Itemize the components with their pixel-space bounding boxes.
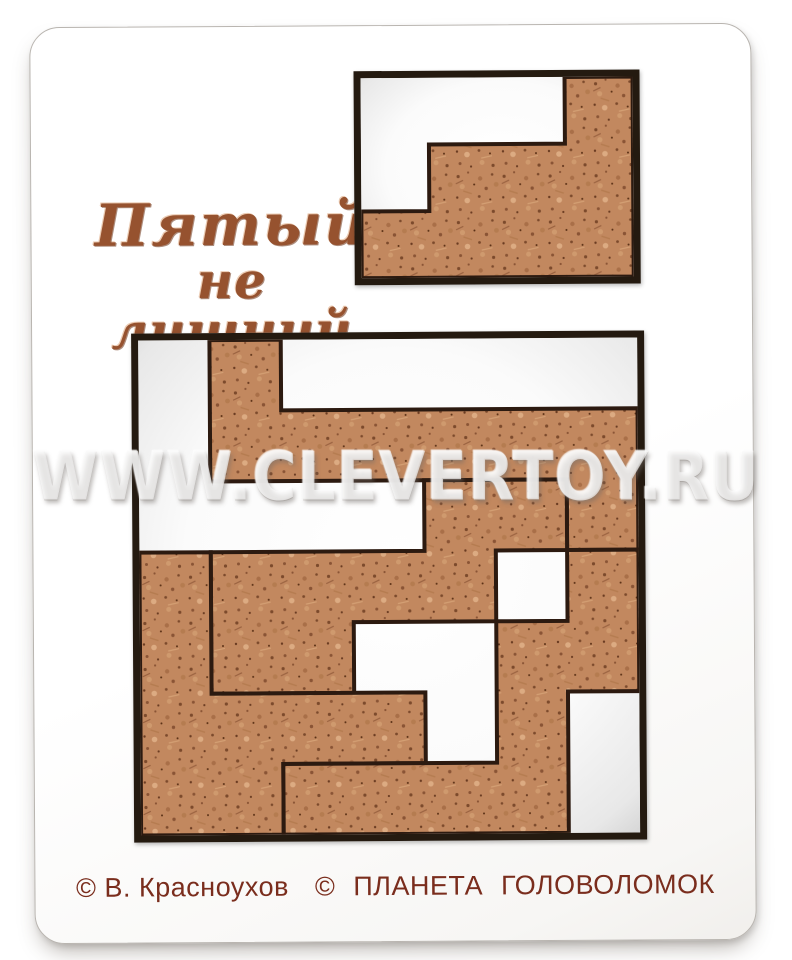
- author-credit: © В. Красноухов: [76, 872, 289, 903]
- publisher-credit: © ПЛАНЕТА ГОЛОВОЛОМОК: [315, 869, 715, 901]
- small-tray: [353, 69, 640, 285]
- main-tray: [131, 330, 647, 842]
- puzzle-board: Пятый не лишний © В. Красноухов© ПЛАНЕТА…: [29, 23, 757, 944]
- main-tray-cutout: [138, 338, 640, 836]
- title-line-1: Пятый: [71, 194, 391, 257]
- credits-line: © В. Красноухов© ПЛАНЕТА ГОЛОВОЛОМОК: [35, 869, 755, 904]
- small-tray-cutout: [361, 77, 634, 279]
